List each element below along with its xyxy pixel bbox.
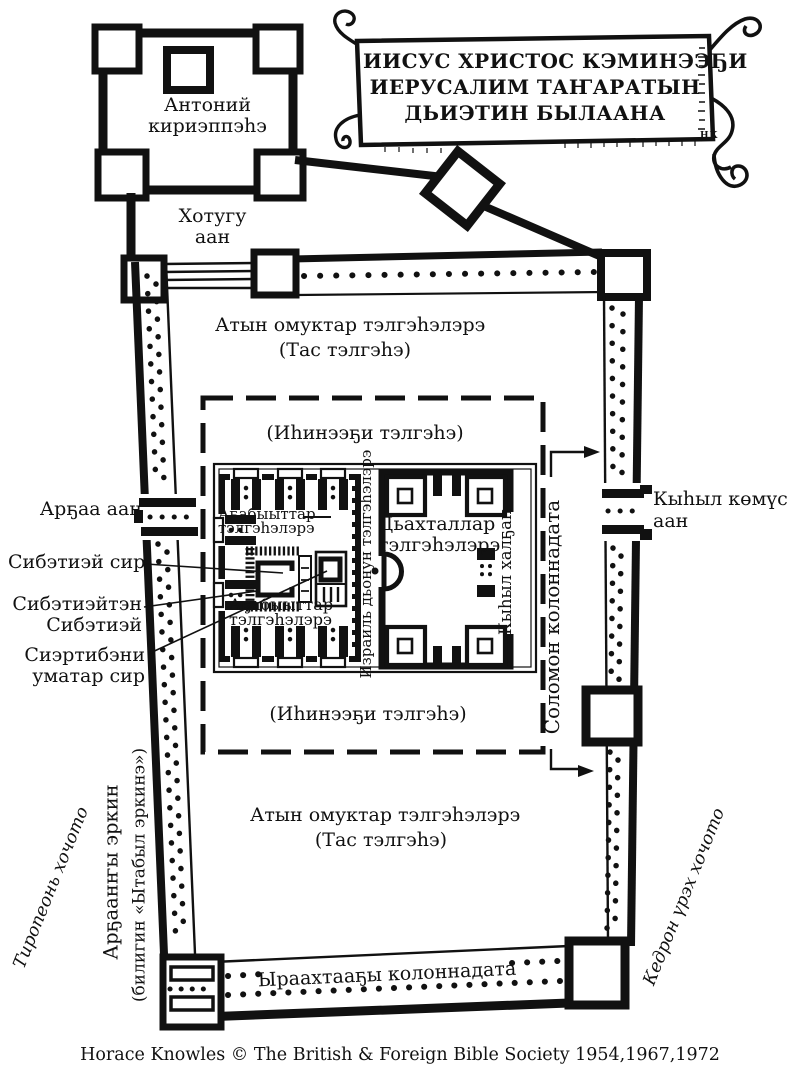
artist-signature: НК (700, 132, 719, 142)
north-gate-label: Хотугу аан (160, 206, 265, 248)
inner-court-label-top: (Иһинээҕи тэлгэһэ) (255, 423, 475, 444)
banner-title-line3: ДЬИЭТИН БЫЛААНА (363, 100, 707, 126)
inner-court-label-bottom: (Иһинээҕи тэлгэһэ) (258, 704, 478, 725)
temple-complex (214, 464, 536, 672)
women-court (372, 472, 516, 667)
east-wall (569, 296, 654, 1005)
banner-title: ИИСУС ХРИСТОС КЭМИНЭЭҔИ ИЕРУСАЛИМ ТАҤАРА… (363, 48, 707, 126)
banner-title-line2: ИЕРУСАЛИМ ТАҤАРАТЫН (363, 74, 707, 100)
banner-title-line1: ИИСУС ХРИСТОС КЭМИНЭЭҔИ (363, 48, 707, 74)
priests-court-label-2: Аҕабыыттар тэлгэһэлэрэ (229, 597, 334, 627)
copyright-line: Horace Knowles © The British & Foreign B… (0, 1046, 800, 1065)
antonia-line2: кириэппэһэ (140, 116, 275, 137)
priests-court-label-1: Аҕабыыттар тэлгэһэлэрэ (218, 507, 316, 535)
holy-of-holies-label: Сибэтиэйтэн Сибэтиэй (12, 594, 142, 636)
north-gate-line1: Хотугу (160, 206, 265, 227)
antonia-fortress-label: Антоний кириэппэһэ (140, 95, 275, 137)
nicanor-gate-steps (384, 554, 402, 589)
solomon-colonnade-label: Соломон колоннадата (541, 477, 563, 757)
beautiful-gate-label: Кыһыл халҕан (497, 507, 515, 637)
israel-court-label: Израиль дьонун тэлгэһэлэрэ (358, 464, 375, 679)
outer-court-label-bottom: Атын омуктар тэлгэһэлэрэ (Тас тэлгэһэ) (250, 803, 512, 853)
temple-plan-page: ИИСУС ХРИСТОС КЭМИНЭЭҔИ ИЕРУСАЛИМ ТАҤАРА… (0, 0, 800, 1085)
antonia-line1: Антоний (140, 95, 275, 116)
holy-place-label: Сибэтиэй сир (8, 552, 144, 573)
golden-gate-label: Кыһыл көмүс аан (653, 488, 798, 532)
north-gate-line2: аан (160, 227, 265, 248)
outer-court-label-top: Атын омуктар тэлгэһэлэрэ (Тас тэлгэһэ) (215, 313, 475, 363)
women-court-label: Дьахталлар тэлгэһэлэрэ (378, 514, 493, 556)
altar-label: Сиэртибэни уматар сир (15, 645, 145, 687)
west-gate-label: Арҕаа аан (30, 499, 142, 520)
western-wall-label-line1: Арҕаанҥы эркин (100, 775, 121, 970)
western-wall-label-line2: (билигин «Ытабыл эркинэ») (131, 740, 150, 1010)
